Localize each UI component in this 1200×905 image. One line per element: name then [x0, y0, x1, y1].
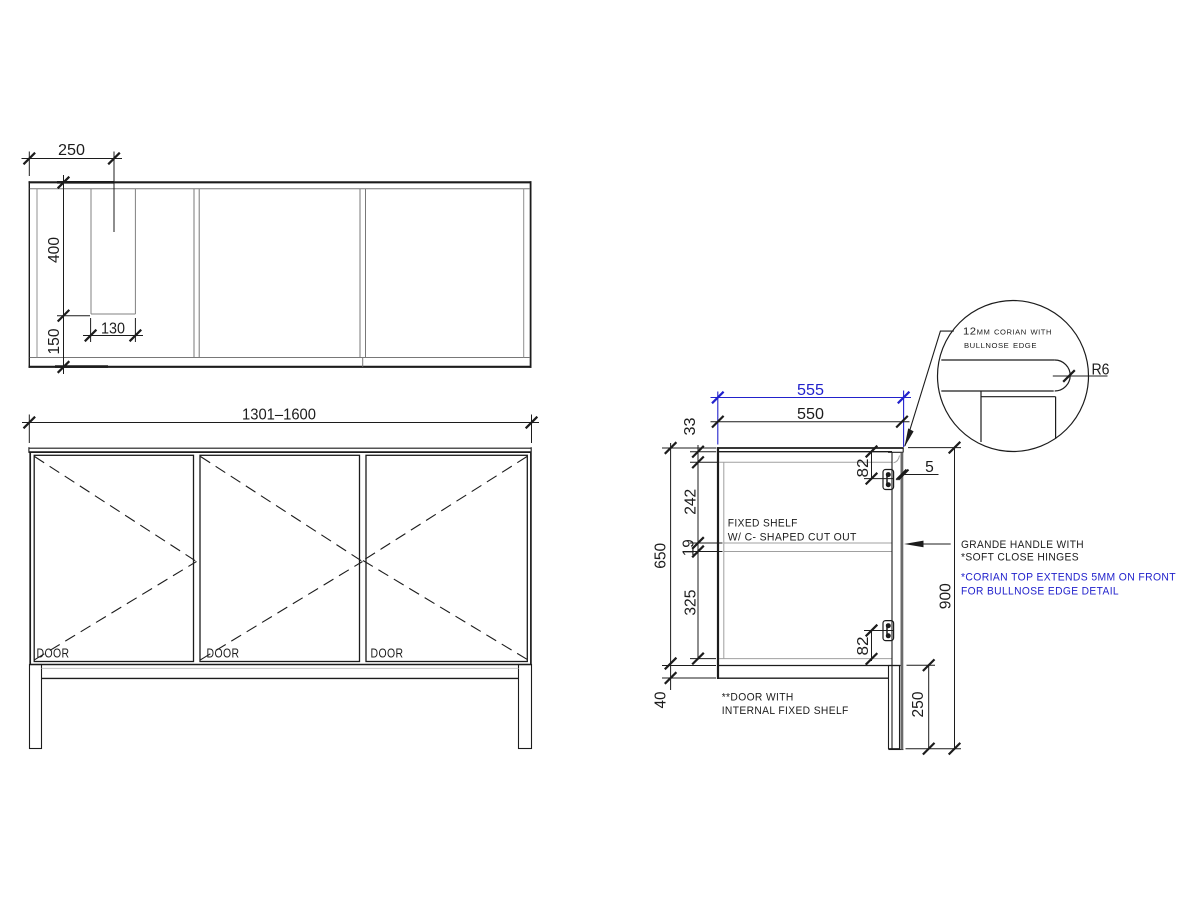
svg-text:**DOOR WITH: **DOOR WITH: [722, 692, 794, 704]
svg-text:400: 400: [46, 237, 63, 263]
svg-text:DOOR: DOOR: [37, 647, 70, 661]
svg-text:FIXED SHELF: FIXED SHELF: [728, 518, 798, 530]
svg-text:82: 82: [855, 637, 872, 656]
svg-text:250: 250: [910, 691, 927, 717]
svg-text:900: 900: [937, 583, 954, 609]
svg-text:242: 242: [682, 489, 699, 515]
svg-text:bullnose edge: bullnose edge: [964, 340, 1037, 351]
svg-text:650: 650: [652, 542, 669, 568]
svg-text:W/ C- SHAPED CUT OUT: W/ C- SHAPED CUT OUT: [728, 531, 857, 543]
svg-text:12mm corian with: 12mm corian with: [963, 327, 1052, 338]
svg-text:555: 555: [797, 382, 824, 399]
svg-text:DOOR: DOOR: [207, 647, 240, 661]
svg-text:250: 250: [58, 142, 85, 159]
svg-text:FOR BULLNOSE EDGE DETAIL: FOR BULLNOSE EDGE DETAIL: [961, 586, 1119, 598]
svg-text:33: 33: [682, 418, 699, 436]
svg-text:325: 325: [682, 589, 699, 615]
svg-text:R6: R6: [1092, 362, 1110, 379]
svg-text:1301–1600: 1301–1600: [242, 407, 316, 424]
svg-text:5: 5: [925, 459, 934, 476]
svg-text:*CORIAN TOP EXTENDS 5MM ON FRO: *CORIAN TOP EXTENDS 5MM ON FRONT: [961, 572, 1176, 584]
svg-text:DOOR: DOOR: [371, 647, 404, 661]
svg-text:82: 82: [855, 459, 872, 478]
svg-text:19: 19: [681, 539, 698, 556]
svg-text:GRANDE HANDLE WITH: GRANDE HANDLE WITH: [961, 539, 1084, 551]
svg-text:150: 150: [46, 328, 63, 354]
svg-text:INTERNAL FIXED SHELF: INTERNAL FIXED SHELF: [722, 705, 849, 717]
svg-text:550: 550: [797, 406, 824, 423]
svg-text:40: 40: [653, 691, 670, 708]
svg-text:130: 130: [101, 321, 125, 338]
svg-text:*SOFT CLOSE HINGES: *SOFT CLOSE HINGES: [961, 552, 1079, 564]
